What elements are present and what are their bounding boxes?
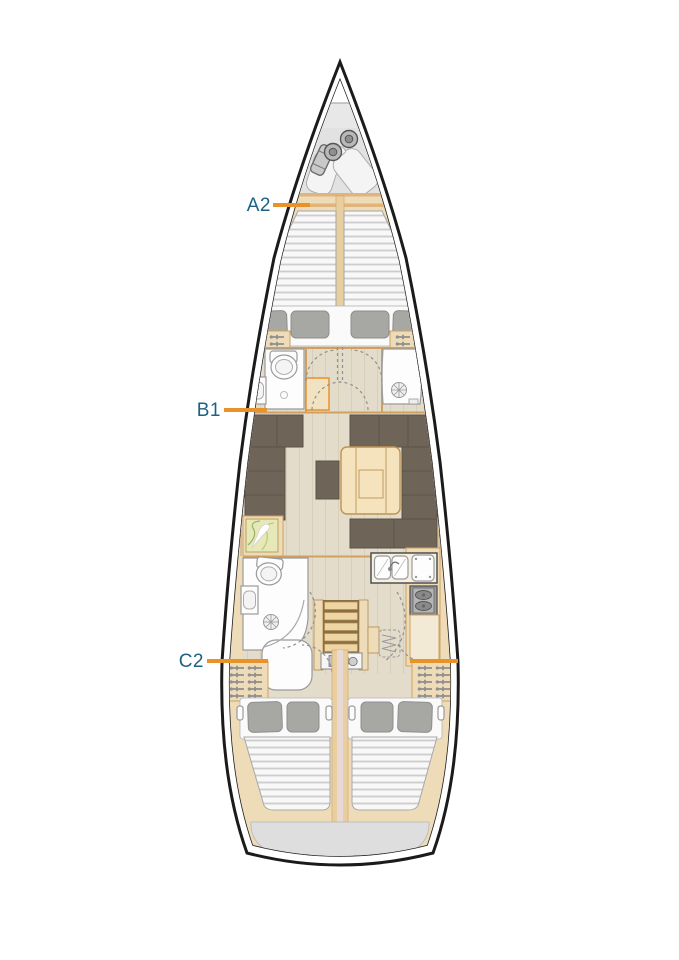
label-c2: C2	[179, 651, 204, 672]
label-line-a2	[273, 203, 310, 207]
reading-light-icon	[429, 315, 437, 332]
corridor-cabinet	[306, 378, 329, 410]
window-icon	[227, 425, 237, 467]
saloon	[233, 412, 447, 556]
galley-counter	[410, 615, 439, 660]
v-berth-port-mattress	[252, 211, 336, 308]
mid-section	[249, 347, 425, 412]
window-icon	[446, 472, 455, 514]
galley-sink-icon	[371, 553, 437, 583]
window-icon	[441, 425, 451, 467]
label-a2: A2	[247, 195, 271, 216]
yacht-layout-plan: A2 B1 C2	[0, 0, 679, 960]
reading-light-icon	[243, 315, 251, 332]
reading-light-icon	[237, 706, 243, 720]
reading-light-icon	[349, 706, 355, 720]
step-side-cabinet	[368, 627, 379, 653]
chart-table	[243, 516, 283, 556]
reading-light-icon	[326, 706, 332, 720]
hanging-locker-starboard	[412, 661, 455, 701]
window-icon	[459, 692, 464, 736]
locker-top-line	[410, 659, 458, 663]
toilet-icon	[270, 351, 297, 379]
shower-drain-icon	[264, 615, 279, 630]
window-icon	[459, 612, 464, 654]
reading-light-icon	[438, 706, 444, 720]
shower-drain-icon	[392, 383, 407, 398]
stove-icon	[410, 586, 437, 615]
forward-shower	[382, 349, 421, 404]
label-line-b1	[224, 408, 267, 412]
latch-icon	[409, 399, 418, 404]
hanging-locker-port	[226, 661, 268, 701]
berth-center-strip	[336, 196, 344, 312]
interior	[215, 60, 464, 870]
label-line-c2	[207, 659, 268, 663]
aft-shower-pan	[262, 640, 312, 690]
steps-icon	[325, 602, 358, 652]
window-icon	[215, 692, 220, 736]
window-icon	[216, 612, 221, 654]
pouf	[316, 461, 339, 499]
anchor-locker	[268, 103, 412, 200]
deck-plan-svg: A2 B1 C2	[0, 0, 679, 960]
label-b1: B1	[197, 400, 221, 421]
v-berth-starboard-mattress	[344, 211, 428, 308]
saloon-table	[341, 447, 400, 514]
window-icon	[224, 472, 233, 514]
sink-icon	[241, 586, 258, 614]
cabin-divider-core	[337, 650, 343, 822]
